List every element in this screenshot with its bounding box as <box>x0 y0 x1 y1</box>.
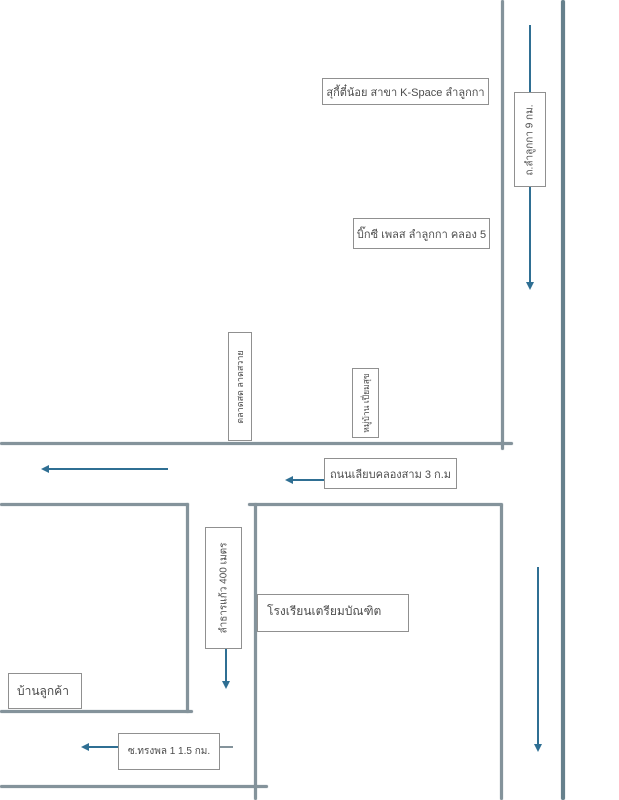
road-left-block-right <box>186 503 189 713</box>
road-liab-khlong-sam-top <box>0 442 513 445</box>
label-market-sign: ตลาดสด ลาดสวาย <box>228 332 252 441</box>
label-songphon-text: ซ.ทรงพล 1 1.5 กม. <box>128 744 210 759</box>
label-liab-khlong-sam: ถนนเลียบคลองสาม 3 ก.ม <box>324 458 457 489</box>
label-suki-teenoi-text: สุกี้ตี๋น้อย สาขา K-Space ลำลูกกา <box>326 83 484 101</box>
label-liab-khlong-sam-text: ถนนเลียบคลองสาม 3 ก.ม <box>330 465 451 483</box>
label-lamlukka-road: ถ.ลำลูกกา 9 กม. <box>514 92 546 187</box>
road-school-block-top <box>248 503 503 506</box>
road-left-block-top <box>0 503 189 506</box>
label-songphon: ซ.ทรงพล 1 1.5 กม. <box>118 733 220 770</box>
map-canvas: สุกี้ตี๋น้อย สาขา K-Space ลำลูกกา บิ๊กซี… <box>0 0 619 800</box>
road-bottom-edge <box>0 785 268 788</box>
label-bigc-place: บิ๊กซี เพลส ลำลูกกา คลอง 5 <box>353 218 490 249</box>
arrow-line-liab-west <box>48 468 168 470</box>
left-arrow-icon <box>41 465 49 473</box>
label-village-sign: หมู่บ้าน เปี่ยมสุข <box>352 368 379 438</box>
label-customer-house: บ้านลูกค้า <box>8 673 82 709</box>
down-arrow-icon <box>222 681 230 689</box>
arrow-line-songphon <box>88 746 118 748</box>
label-customer-house-text: บ้านลูกค้า <box>17 682 69 701</box>
road-left-block-bottom <box>0 710 193 713</box>
down-arrow-icon <box>526 282 534 290</box>
label-suki-teenoi: สุกี้ตี๋น้อย สาขา K-Space ลำลูกกา <box>322 78 489 105</box>
label-lamlukka-road-text: ถ.ลำลูกกา 9 กม. <box>523 104 538 175</box>
line-songphon-right <box>220 746 233 748</box>
label-school-text: โรงเรียนเตรียมบัณฑิต <box>267 602 381 621</box>
arrow-line-soi-down <box>225 648 227 682</box>
road-lamlukka-left-lower <box>500 504 503 800</box>
left-arrow-icon <box>81 743 89 751</box>
road-lamlukka-right <box>561 0 565 800</box>
label-market-sign-text: ตลาดสด ลาดสวาย <box>233 350 247 423</box>
label-school: โรงเรียนเตรียมบัณฑิต <box>257 594 409 632</box>
left-arrow-icon <box>285 476 293 484</box>
label-soi-distance-text: ลำธารแก้ว 400 เมตร <box>216 542 231 633</box>
arrow-line-lamlukka-bottom <box>537 567 539 745</box>
label-soi-distance: ลำธารแก้ว 400 เมตร <box>205 527 242 649</box>
road-lamlukka-left-upper <box>501 0 504 450</box>
label-village-sign-text: หมู่บ้าน เปี่ยมสุข <box>359 373 373 432</box>
road-school-block-left <box>254 503 257 800</box>
arrow-line-liab-box <box>292 479 324 481</box>
label-bigc-place-text: บิ๊กซี เพลส ลำลูกกา คลอง 5 <box>357 225 486 243</box>
down-arrow-icon <box>534 744 542 752</box>
